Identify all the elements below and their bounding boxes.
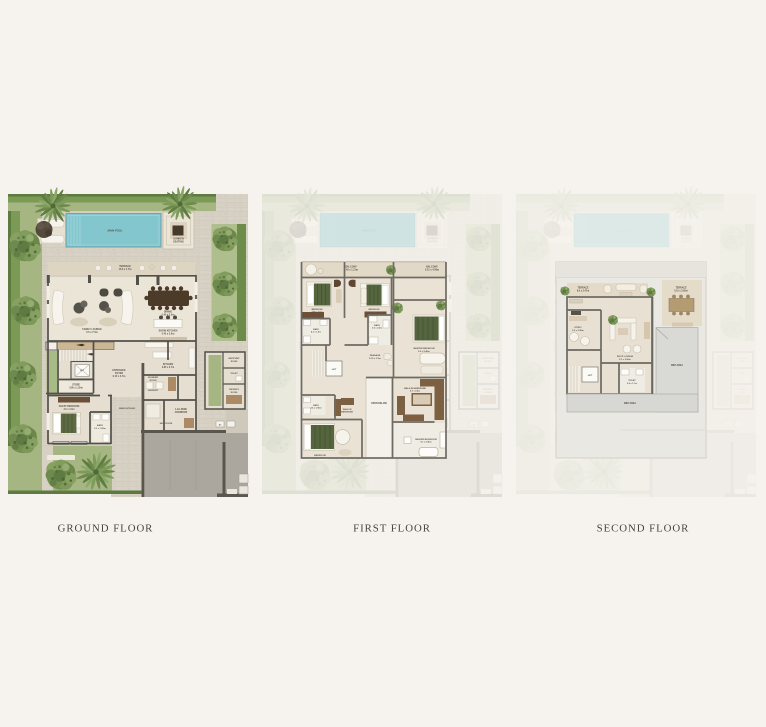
svg-text:ROOM: ROOM — [231, 361, 238, 363]
svg-text:WINDCATCHER: WINDCATCHER — [119, 407, 136, 410]
svg-text:5.1 x 3.06m: 5.1 x 3.06m — [619, 359, 631, 361]
svg-text:5.15 x 2.65m: 5.15 x 2.65m — [674, 291, 688, 293]
svg-text:OPEN BELOW: OPEN BELOW — [371, 403, 388, 405]
svg-text:5.45 x 3.0m: 5.45 x 3.0m — [162, 332, 175, 335]
svg-text:STORE: STORE — [72, 385, 80, 387]
svg-text:TERRACE: TERRACE — [675, 287, 687, 290]
svg-text:6.15 x 4.7m: 6.15 x 4.7m — [113, 375, 126, 378]
svg-text:WONDER: WONDER — [148, 377, 158, 379]
svg-text:WALK-IN WARDROBE: WALK-IN WARDROBE — [404, 387, 426, 390]
svg-text:3.85 x 2.7m: 3.85 x 2.7m — [162, 367, 174, 369]
svg-text:SECOND FLOOR: SECOND FLOOR — [597, 523, 690, 535]
svg-text:2.6 x 1.7m: 2.6 x 1.7m — [627, 383, 637, 385]
svg-text:4.0 x 4.4m: 4.0 x 4.4m — [64, 408, 75, 411]
svg-text:TOILET: TOILET — [230, 373, 238, 375]
svg-text:5.1 x 2.45m: 5.1 x 2.45m — [420, 441, 431, 444]
svg-text:WALK-IN: WALK-IN — [343, 408, 352, 411]
svg-text:PASSAGE: PASSAGE — [370, 354, 381, 357]
svg-text:15.0 x 1.7m: 15.0 x 1.7m — [119, 268, 132, 271]
svg-text:3.0 x 2.0m: 3.0 x 2.0m — [372, 328, 382, 330]
svg-text:MEP AREA: MEP AREA — [671, 364, 683, 367]
svg-text:ROOM: ROOM — [150, 380, 157, 382]
svg-text:BEDROOM: BEDROOM — [369, 309, 380, 311]
svg-text:BATH: BATH — [374, 324, 380, 327]
svg-text:3.3 x 3.96m: 3.3 x 3.96m — [572, 330, 584, 332]
svg-text:LIFT: LIFT — [588, 375, 593, 377]
svg-text:LIFT: LIFT — [332, 369, 337, 371]
svg-text:CORRIDOR: CORRIDOR — [175, 412, 188, 414]
svg-text:MEP AREA: MEP AREA — [624, 402, 636, 405]
svg-text:BATH: BATH — [313, 328, 319, 331]
svg-text:GUEST BEDROOM: GUEST BEDROOM — [59, 406, 80, 408]
svg-text:BATH: BATH — [313, 404, 319, 407]
svg-text:ROOF LOUNGE: ROOF LOUNGE — [617, 356, 634, 358]
svg-text:KITCHEN: KITCHEN — [163, 364, 174, 366]
svg-text:MAIN POOL: MAIN POOL — [108, 229, 123, 233]
svg-text:5.15 x 1.2m: 5.15 x 1.2m — [369, 358, 381, 360]
svg-text:MASTER BEDROOM: MASTER BEDROOM — [413, 347, 434, 350]
svg-text:3.1 x 1.65m: 3.1 x 1.65m — [94, 428, 106, 430]
svg-text:ROOM: ROOM — [231, 392, 238, 394]
svg-text:MEP/PUMP: MEP/PUMP — [228, 358, 240, 360]
svg-text:5.45 x 1.21m: 5.45 x 1.21m — [344, 269, 358, 272]
svg-text:4.1 x 1.9m: 4.1 x 1.9m — [311, 331, 321, 334]
svg-text:MUD ROOM: MUD ROOM — [160, 423, 173, 425]
svg-text:2.6 x 1.95m: 2.6 x 1.95m — [310, 408, 321, 410]
svg-text:4.7 x 2.4m: 4.7 x 2.4m — [410, 390, 420, 393]
svg-text:9.6 x 2.47m: 9.6 x 2.47m — [577, 290, 589, 293]
svg-text:5.21 x 4.06m: 5.21 x 4.06m — [425, 269, 439, 272]
svg-text:GROUND FLOOR: GROUND FLOOR — [58, 523, 154, 535]
svg-text:1.2m WIDE: 1.2m WIDE — [175, 409, 187, 411]
svg-text:BATH: BATH — [97, 424, 103, 427]
svg-text:3.86 x 1.35m: 3.86 x 1.35m — [69, 388, 83, 390]
svg-text:FIRST FLOOR: FIRST FLOOR — [353, 523, 431, 535]
svg-text:WARDROBE: WARDROBE — [341, 411, 354, 414]
svg-text:TOILET: TOILET — [628, 380, 636, 382]
svg-text:STUDY: STUDY — [574, 327, 582, 329]
svg-text:TERRACE: TERRACE — [577, 287, 589, 290]
svg-text:3.85 x 3.6m: 3.85 x 3.6m — [311, 311, 322, 313]
svg-text:5.2 x 5.45m: 5.2 x 5.45m — [418, 350, 430, 353]
svg-text:MASTER BATHROOM: MASTER BATHROOM — [415, 438, 437, 441]
svg-text:SEATING: SEATING — [173, 241, 184, 244]
svg-text:5.5 x 7.5m: 5.5 x 7.5m — [86, 331, 97, 334]
svg-text:DRIVER'S: DRIVER'S — [229, 389, 239, 391]
svg-text:LAUNDRY: LAUNDRY — [148, 389, 159, 392]
